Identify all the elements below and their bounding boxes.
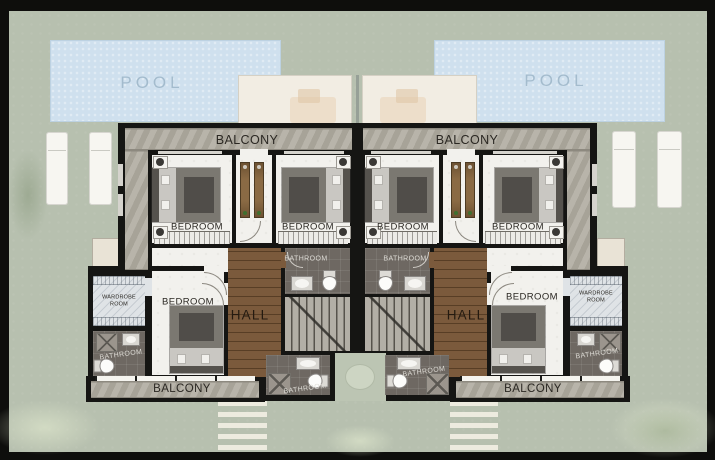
toilet [322,270,337,292]
planter [254,162,264,218]
corridor-left [152,248,228,266]
balcony-label: BALCONY [153,383,211,395]
shower [96,333,118,352]
balcony-door-left [240,149,268,156]
balcony-label: BALCONY [436,133,499,147]
pool-right-label: POOL [524,71,587,91]
toilet [378,270,393,292]
door-gap [145,278,152,296]
hall-label: HALL [447,308,486,323]
window [158,151,222,154]
bed [170,306,223,373]
window [284,151,344,154]
wardrobe-word: WARDROBE [102,294,136,300]
bedroom-label: BEDROOM [282,222,334,233]
room-word: ROOM [110,301,128,307]
stairs-right [365,297,430,351]
utility-pad-right [597,238,625,267]
bed [152,168,220,222]
nightstand [549,226,564,239]
balcony-label: BALCONY [504,383,562,395]
window [592,194,597,216]
corridor-right [487,248,563,266]
bedroom-label: BEDROOM [492,222,544,233]
hall-label: HALL [231,308,270,323]
nightstand [336,226,351,239]
window [371,151,431,154]
balcony-label: BALCONY [216,133,279,147]
utility-pad-left [92,238,120,267]
terrace-furniture [298,89,320,103]
window-sill [460,376,620,381]
shower [426,373,449,395]
bedroom-label: BEDROOM [171,222,223,233]
sink [291,276,313,291]
side-band-right [567,150,590,270]
bedroom-label: BEDROOM [506,292,558,303]
bed [495,168,563,222]
room-word: ROOM [587,297,605,303]
shelf [93,317,145,326]
sink [122,333,140,346]
planter [465,162,475,218]
bedroom-label: BEDROOM [377,222,429,233]
sink [296,357,320,370]
terrace-panel-right [362,75,477,128]
side-band-left [125,150,148,270]
planter [240,162,250,218]
nightstand [336,156,351,169]
wardrobe-room-label: WARDROBE ROOM [98,294,140,307]
terrace-panel-left [238,75,352,128]
window [118,164,123,186]
bed [492,306,545,373]
window [493,151,557,154]
nightstand [366,156,381,169]
balcony-door-right [447,149,475,156]
plant-shadow [8,150,48,240]
walkway-left [218,401,267,452]
shelf [570,317,622,326]
stepping-stone [345,364,375,390]
window [118,194,123,216]
terrace-furniture [396,89,418,103]
bathroom-label: BATHROOM [284,256,327,263]
shelf [570,276,622,285]
bathroom-label: BATHROOM [383,256,426,263]
shelf [93,276,145,285]
walkway-right [450,401,498,452]
sun-lounger [46,132,68,205]
planter [451,162,461,218]
sun-lounger [89,132,112,205]
bedroom-label: BEDROOM [162,297,214,308]
floor-plan-canvas: POOL POOL BALCONY BALCONY [0,0,715,460]
door-gap [563,278,570,296]
wardrobe-room-label: WARDROBE ROOM [575,290,617,303]
nightstand [549,156,564,169]
window-sill [95,376,255,381]
window [592,164,597,186]
door-gap [204,266,228,272]
sink [577,333,595,346]
party-wall-upper [356,75,359,128]
door-gap [429,252,434,268]
wardrobe-word: WARDROBE [579,290,613,296]
sun-lounger [657,131,682,208]
bed [282,168,350,222]
palm-shadow [625,408,705,453]
door-gap [487,266,511,272]
sink [397,357,421,370]
stairs-left [285,297,350,351]
nightstand [153,226,168,239]
plant-blob [325,425,395,457]
sink [404,276,426,291]
nightstand [153,156,168,169]
pool-left-label: POOL [120,73,183,93]
bed [365,168,433,222]
sun-lounger [612,131,636,208]
toilet [598,359,620,374]
